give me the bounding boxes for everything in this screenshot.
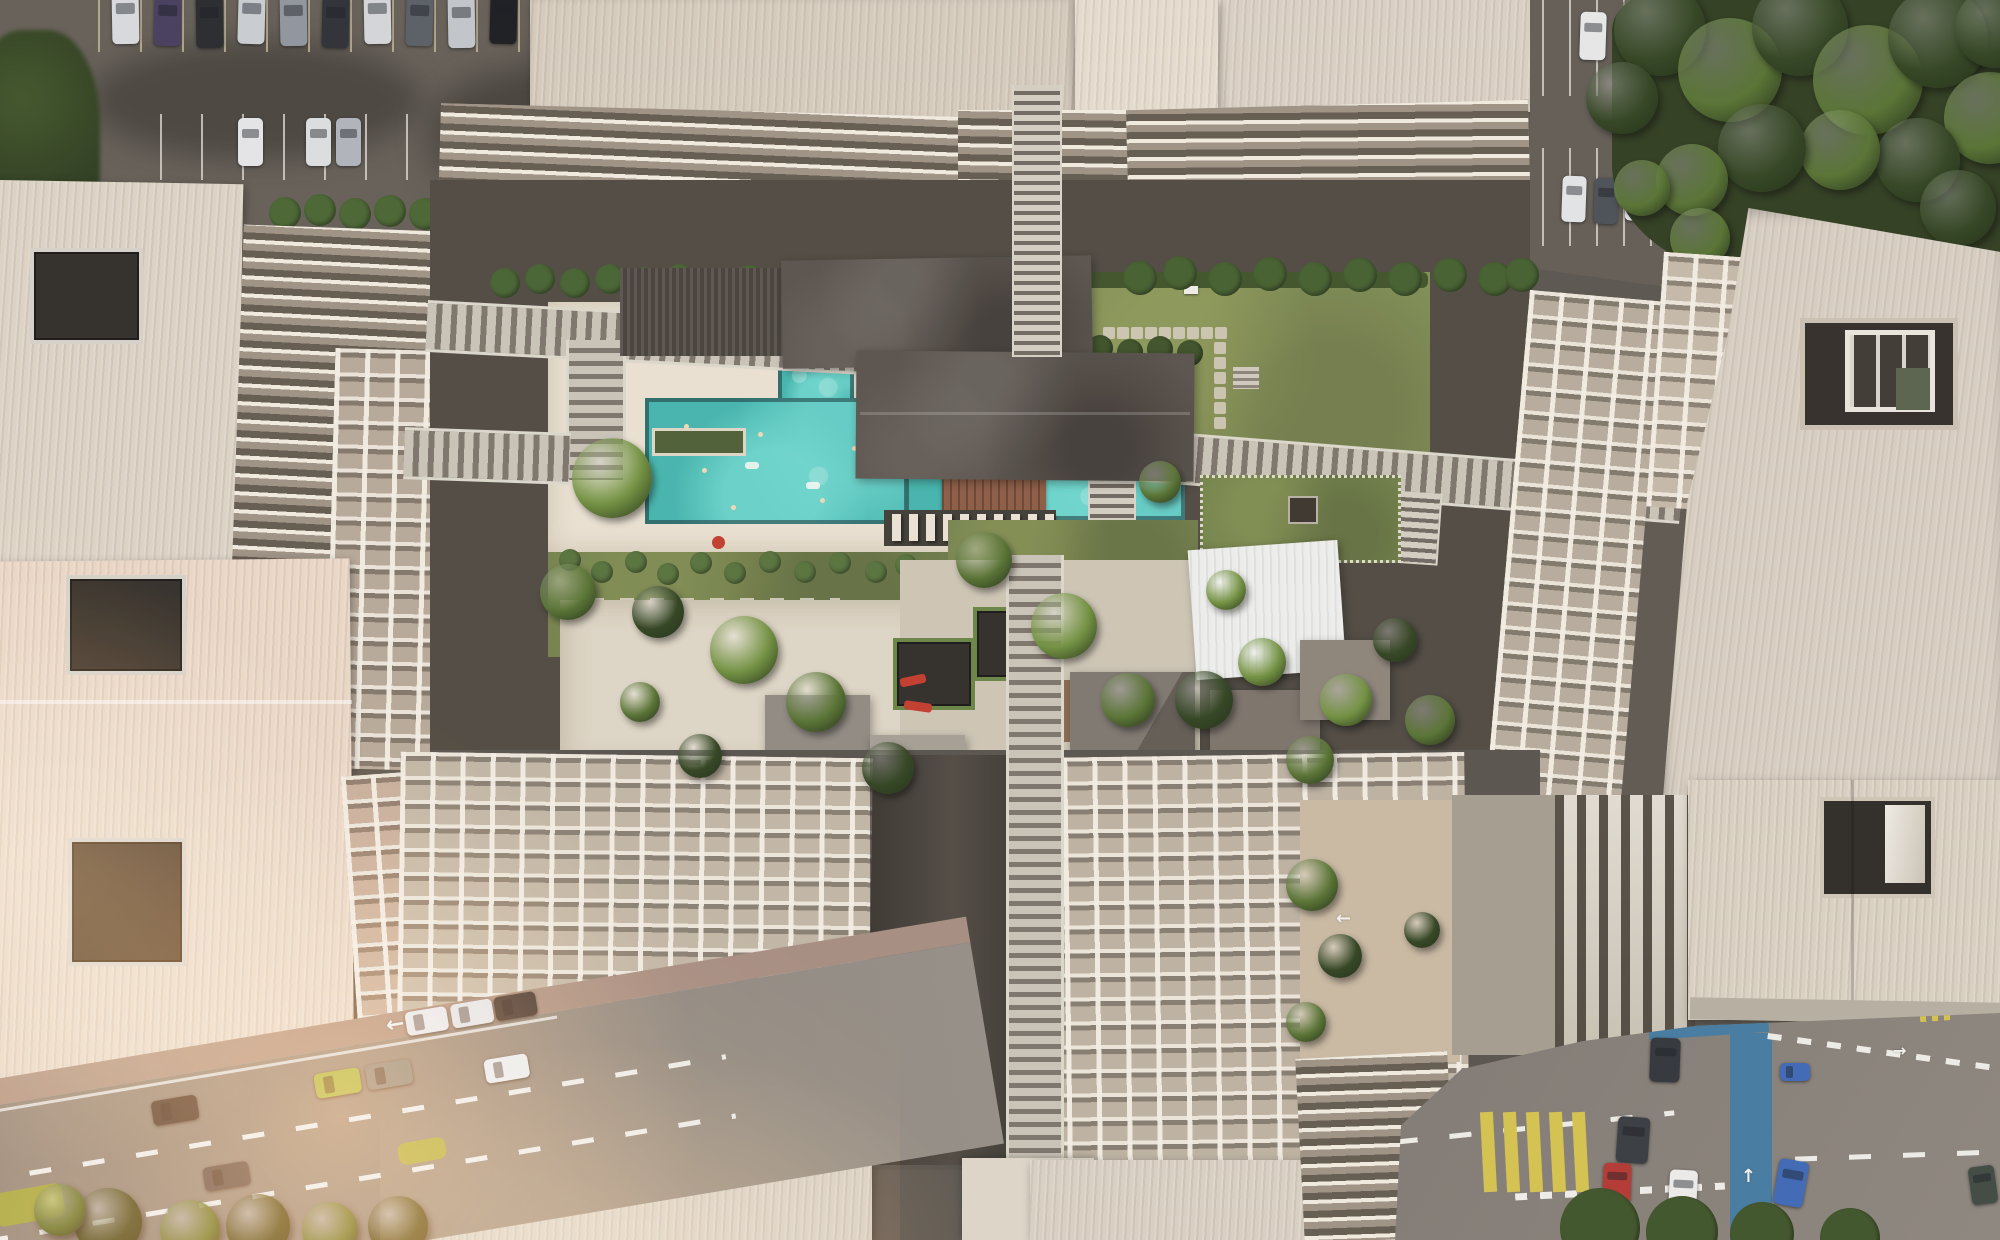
car [1772, 1158, 1810, 1209]
ornamental-lawn-feature [1288, 496, 1318, 524]
car-windshield [116, 3, 135, 14]
hedge-bush [1505, 258, 1539, 292]
road-arrow-left: ← [384, 1011, 406, 1039]
car-windshield [326, 7, 345, 18]
shrub [591, 561, 613, 583]
walkway-branch-west [403, 427, 571, 485]
lane-dashes-se-2 [1795, 1149, 2000, 1161]
tree [956, 532, 1012, 588]
tree [862, 742, 914, 794]
tower-roof-west-upper [0, 180, 243, 569]
tree [1800, 110, 1880, 190]
car [448, 0, 476, 48]
hedge-bush [1163, 256, 1197, 290]
car-windshield [160, 1102, 173, 1121]
tree [678, 734, 722, 778]
stepping-stone [1201, 327, 1213, 339]
tree [1175, 671, 1233, 729]
parking-line [201, 114, 203, 180]
car-windshield [1607, 1171, 1627, 1180]
tree [620, 682, 660, 722]
car [196, 0, 224, 48]
clubhouse-main-roof [855, 351, 1194, 482]
tree [1404, 912, 1440, 948]
tree [1206, 570, 1246, 610]
parking-line [283, 114, 285, 180]
pool-float [806, 482, 820, 489]
stepping-stone [1117, 327, 1129, 339]
car-windshield [1566, 186, 1583, 196]
car-windshield [413, 1013, 425, 1031]
car [237, 0, 265, 44]
garden-steps [1233, 367, 1259, 389]
car-windshield [368, 3, 387, 14]
car [1780, 1063, 1810, 1081]
car-windshield [212, 1169, 225, 1187]
car [112, 0, 140, 44]
pergola-column [892, 514, 901, 541]
tree [1318, 934, 1362, 978]
car-windshield [242, 3, 261, 14]
car [306, 118, 331, 166]
tree [1286, 1002, 1326, 1042]
shrub [625, 551, 647, 573]
car [1561, 176, 1587, 223]
car [321, 0, 349, 48]
swimmer [684, 424, 689, 429]
stepping-stone [1187, 327, 1199, 339]
yellow-stripe [1503, 1112, 1520, 1193]
bike-lane-arrow-up: → [1738, 1168, 1759, 1183]
stepping-stone [1173, 327, 1185, 339]
car-windshield [310, 129, 328, 139]
tree [1320, 674, 1372, 726]
parking-line [182, 0, 184, 52]
hedge-bush [269, 197, 301, 229]
car-windshield [1786, 1066, 1793, 1079]
hedge-bush [1433, 258, 1467, 292]
shrub [829, 552, 851, 574]
car-windshield [200, 7, 219, 18]
car-windshield [340, 129, 358, 139]
tree [1614, 160, 1670, 216]
car-windshield [284, 5, 303, 16]
tree [1101, 673, 1155, 727]
roof-courtyard-west-upper [30, 248, 143, 344]
bike-lane-arrow-2: → [1893, 1041, 1906, 1060]
clubhouse-annex-roof-west [620, 268, 786, 356]
red-umbrella [712, 536, 725, 549]
car-windshield [1781, 1168, 1803, 1181]
shrub [690, 552, 712, 574]
shrub [657, 563, 679, 585]
car-windshield [492, 1061, 504, 1079]
parking-line [98, 0, 100, 52]
parking-line [140, 0, 142, 52]
parking-line [308, 0, 310, 52]
shrub [759, 551, 781, 573]
tree [1286, 859, 1338, 911]
tree [1139, 461, 1181, 503]
hedge-bush [490, 268, 520, 298]
sunken-courtyard-1 [893, 638, 975, 710]
clubhouse-roof-ridge [860, 412, 1190, 415]
roof-seam [0, 700, 352, 704]
courtyard-green-panel [1896, 368, 1930, 410]
car [153, 0, 181, 46]
tree [1586, 62, 1658, 134]
car [489, 0, 517, 44]
roof-seam-se [1851, 780, 1854, 1018]
pavement-se [1452, 795, 1560, 1055]
parking-line [1542, 148, 1544, 246]
hedge-bush [560, 268, 590, 298]
stepping-stone [1214, 387, 1226, 399]
car-windshield [502, 998, 514, 1016]
hedge-bush [1388, 262, 1422, 296]
tree [786, 672, 846, 732]
car [1649, 1037, 1681, 1082]
roof-courtyard-west-lower [68, 838, 186, 966]
stepping-stone [1215, 327, 1227, 339]
tree [1405, 695, 1455, 745]
tree [1373, 618, 1417, 662]
tree [1718, 104, 1806, 192]
parking-line [365, 114, 367, 180]
shrub [794, 561, 816, 583]
car-windshield [374, 1067, 387, 1086]
stepping-stone [1214, 372, 1226, 384]
hedge-bush [525, 264, 555, 294]
parking-line [266, 0, 268, 52]
stair-bridge-top [1012, 85, 1062, 357]
pool-float [745, 462, 759, 469]
roof-courtyard-west-mid [66, 575, 186, 675]
parking-line [518, 0, 520, 52]
stepping-stone [1214, 402, 1226, 414]
courtyard-funnel-wall [1885, 805, 1925, 883]
pergola-column [909, 514, 918, 541]
swimmer [702, 468, 707, 473]
car-windshield [410, 5, 429, 16]
swimmer [731, 505, 736, 510]
car-windshield [1673, 1179, 1693, 1189]
tree [1920, 170, 1996, 246]
pool-planter [652, 428, 746, 456]
car [280, 0, 308, 46]
car-windshield [494, 3, 513, 14]
swimmer [820, 498, 825, 503]
car-windshield [452, 7, 471, 18]
hedge-bush [1208, 262, 1242, 296]
parking-line [224, 0, 226, 52]
shrub [865, 561, 887, 583]
tree [34, 1184, 86, 1236]
car-windshield [1598, 188, 1615, 198]
parking-line [434, 0, 436, 52]
hedge-bush [339, 198, 371, 230]
parking-line [350, 0, 352, 52]
car-windshield [1584, 22, 1603, 32]
hedge-bush [1343, 258, 1377, 292]
facade-window-slots-se [1555, 795, 1695, 1057]
car-windshield [323, 1075, 336, 1094]
parking-line [1542, 0, 1544, 96]
tree [1031, 593, 1097, 659]
tree [710, 616, 778, 684]
tree [1238, 638, 1286, 686]
path-arrow: ← [1336, 908, 1351, 929]
car [1579, 12, 1607, 61]
pergola-column [926, 514, 935, 541]
hedge-bush [1253, 257, 1287, 291]
tree [632, 586, 684, 638]
parking-line [160, 114, 162, 180]
car-windshield [1655, 1047, 1676, 1057]
car [238, 118, 263, 166]
stepping-stone [1214, 342, 1226, 354]
hedge-bush [1123, 261, 1157, 295]
car [1615, 1116, 1650, 1164]
tree [540, 564, 596, 620]
stepping-stone [1131, 327, 1143, 339]
hedge-bush [1298, 262, 1332, 296]
stepping-stone [1214, 357, 1226, 369]
car [1967, 1164, 1998, 1205]
car-windshield [242, 129, 260, 139]
shrub [724, 562, 746, 584]
hedge-bush [374, 195, 406, 227]
tree [1286, 736, 1334, 784]
swimmer [758, 432, 763, 437]
car [405, 0, 433, 46]
yellow-stripe [1480, 1112, 1497, 1193]
car-windshield [458, 1006, 470, 1024]
aerial-photo-canvas: ← ← → → → [0, 0, 2000, 1240]
stepping-stone [1214, 417, 1226, 429]
car [364, 0, 392, 44]
car [336, 118, 361, 166]
car-windshield [1972, 1173, 1991, 1183]
hedge-bush [304, 194, 336, 226]
parking-line [406, 114, 408, 180]
parking-line [1569, 0, 1571, 96]
car-windshield [1622, 1126, 1645, 1137]
parking-line [476, 0, 478, 52]
car-windshield [158, 5, 177, 16]
tree [572, 438, 652, 518]
parking-line [392, 0, 394, 52]
